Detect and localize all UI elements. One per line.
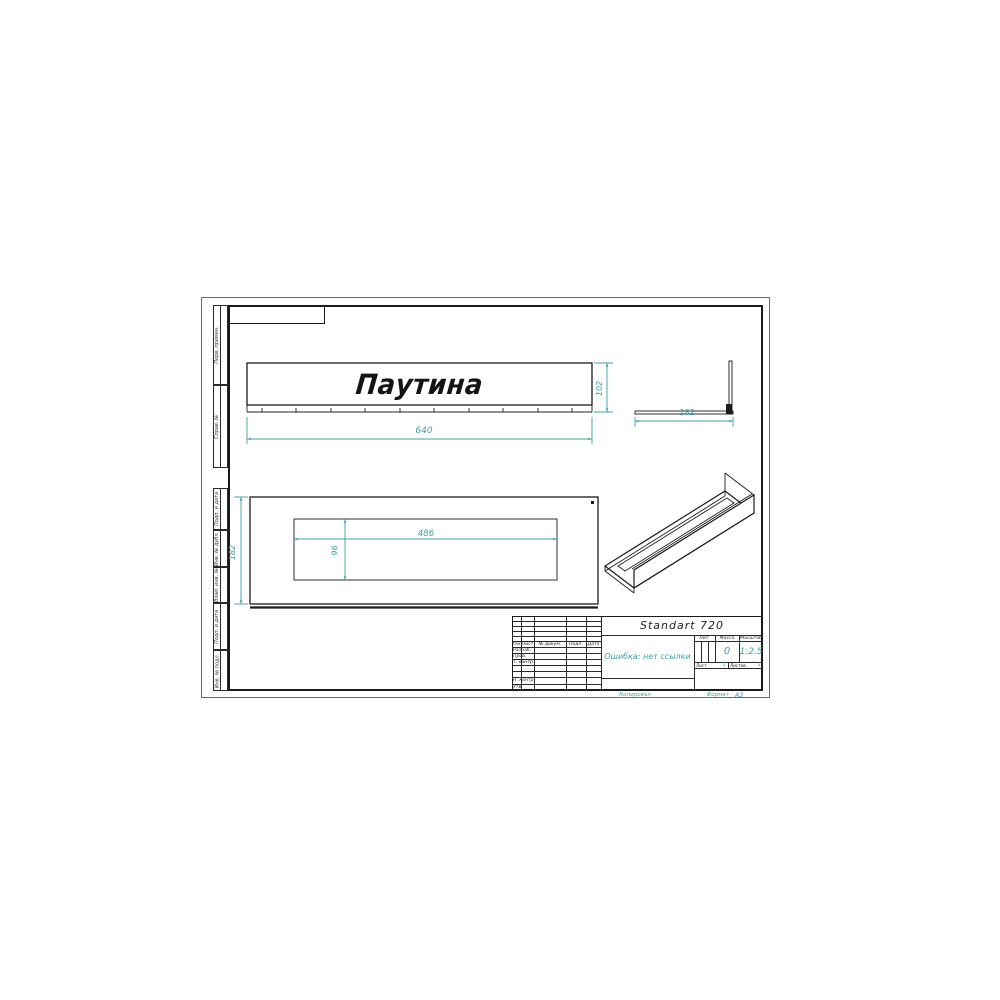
sheet-label: Лист [696,663,707,668]
mass-value: 0 [715,641,739,662]
corner-designation-box [230,306,325,324]
title-part-name: Ошибка: нет ссылки [601,635,694,678]
signature-row-tkontr: Т. контр. [512,659,534,665]
margin-cell-label: Перв. примен. [214,326,220,364]
format-label: Формат [707,692,729,698]
change-col-data: Дата [586,641,601,647]
sheet-value: 1 [723,662,726,668]
format-value: A3 [735,691,744,699]
margin-cell-podp-data-1: Подп. и дата [213,488,228,530]
margin-cell-label: Подп. и дата [214,609,220,643]
signature-row-utv: Утв. [512,684,534,691]
sheets-cell: Листов 1 [728,662,763,668]
change-col-podp: Подп. [566,641,586,647]
margin-cell-divider [220,604,221,649]
margin-cell-label: Инв. № подл. [214,653,220,688]
margin-cell-divider [220,489,221,529]
dimension-slot-length: 486 [402,529,450,538]
change-col-docnum: № докум. [534,641,566,647]
format-cell: Формат A3 [700,691,750,698]
margin-cell-perv-primen: Перв. примен. [213,305,228,385]
lit-label: Лит. [694,635,715,641]
margin-cell-divider [220,531,221,566]
dimension-depth-side: 182 [664,408,710,417]
margin-cell-label: Взам. инв. № [214,568,220,602]
dimension-height: 102 [593,366,606,410]
sheet-cell: Лист 1 [694,662,728,668]
margin-cell-divider [220,568,221,602]
dimension-slot-width: 96 [329,529,342,571]
dimension-depth-plan: 182 [226,531,239,573]
part-logo: Паутина [259,363,580,405]
signature-row-nkontr: Н. контр. [512,677,534,684]
margin-cell-sprav-no: Справ. № [213,385,228,468]
copied-label: Копировал [600,691,670,698]
sheets-label: Листов [730,663,746,668]
sheets-value: 1 [758,662,761,668]
title-designation: Standart 720 [601,616,763,635]
margin-cell-label: Подп. и дата [214,492,220,526]
margin-cell-inv-podl: Инв. № подл. [213,650,228,691]
drawing-sheet: Перв. примен. Справ. № Подп. и дата Инв.… [0,0,1000,1000]
margin-cell-label: Справ. № [214,414,220,438]
margin-cell-podp-data-2: Подп. и дата [213,603,228,650]
margin-cell-divider [220,306,221,384]
scale-value: 1:2.5 [739,641,763,662]
dimension-length: 640 [400,426,448,436]
margin-cell-label: Инв. № дубл. [214,531,220,565]
